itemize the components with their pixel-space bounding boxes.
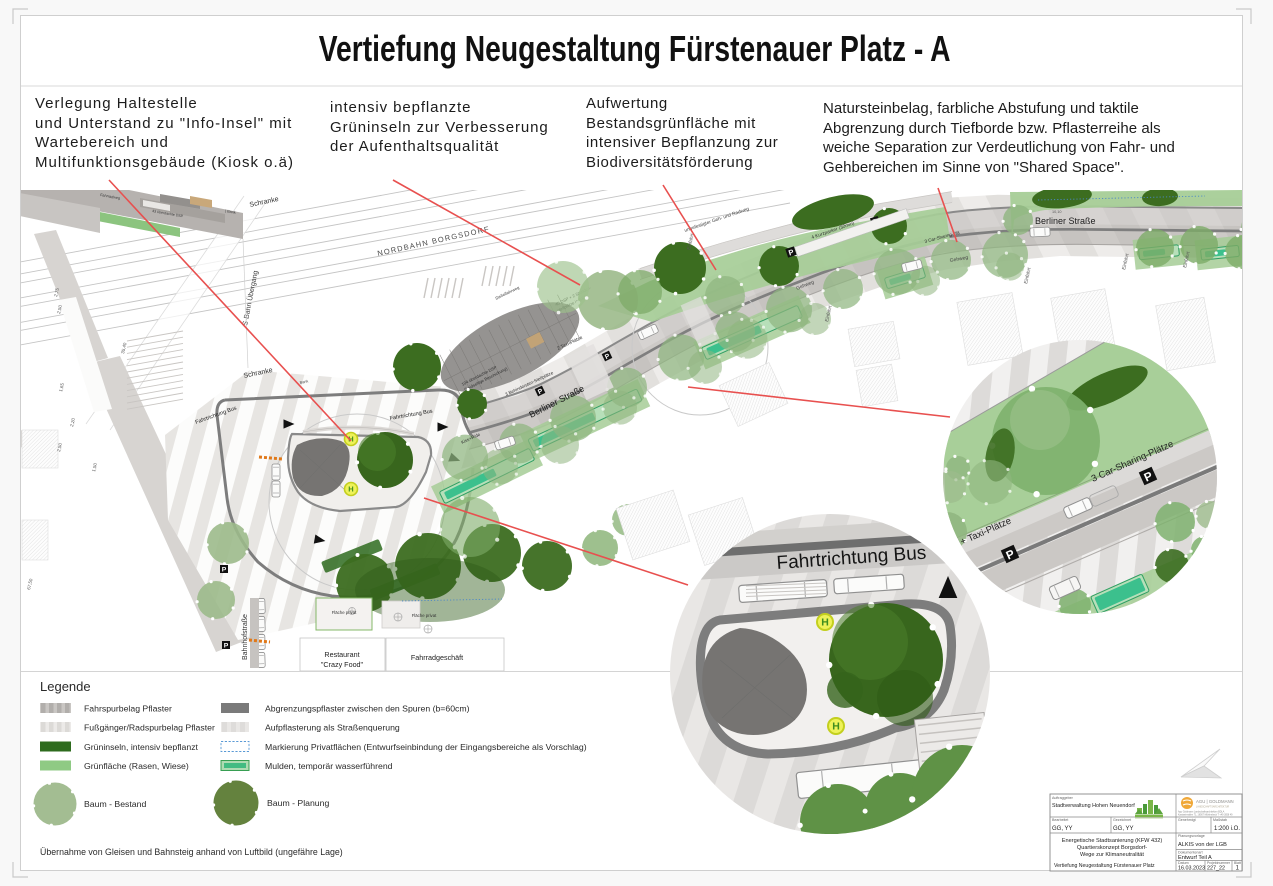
svg-text:S-Bahn Übergang: S-Bahn Übergang [241,270,260,327]
svg-text:1:200 i.O.: 1:200 i.O. [1214,826,1240,832]
svg-text:Fahrradgeschäft: Fahrradgeschäft [411,653,463,662]
svg-text:Bahnhofstraße: Bahnhofstraße [242,614,249,660]
svg-text:unbefestigter Geh- und Radweg: unbefestigter Geh- und Radweg [684,206,751,234]
svg-text:Baum - Bestand: Baum - Bestand [84,799,146,809]
svg-text:2,50: 2,50 [56,304,63,314]
svg-text:Legende: Legende [40,679,91,694]
svg-text:P: P [224,643,229,650]
svg-text:Projektnummer: Projektnummer [1207,861,1231,865]
svg-text:GG, YY: GG, YY [1113,826,1134,832]
svg-text:Wege zur Klimaneutralität: Wege zur Klimaneutralität [1080,852,1144,858]
svg-text:Planungsvorlage: Planungsvorlage [1178,834,1205,838]
svg-text:Schranke: Schranke [249,196,279,209]
svg-text:Fahrspurbelag Pflaster: Fahrspurbelag Pflaster [84,704,172,714]
svg-text:"Crazy Food": "Crazy Food" [321,660,364,669]
svg-text:Berliner Straße: Berliner Straße [1035,216,1096,226]
svg-text:H: H [348,485,353,494]
svg-text:2,50: 2,50 [56,442,63,452]
svg-text:Maßstab: Maßstab [1213,818,1227,822]
svg-text:Mulden, temporär wasserführend: Mulden, temporär wasserführend [265,761,393,771]
svg-text:AGU | GOLDMANN: AGU | GOLDMANN [1196,799,1234,804]
svg-text:ALKIS von der LGB: ALKIS von der LGB [1178,842,1227,848]
svg-text:Fläche privat: Fläche privat [332,610,357,615]
svg-text:Restaurant: Restaurant [324,650,359,659]
svg-text:Grüninseln, intensiv bepflanzt: Grüninseln, intensiv bepflanzt [84,742,199,752]
svg-text:Dokumentenart: Dokumentenart [1178,851,1203,855]
svg-text:Fußgänger/Radspurbelag Pflaste: Fußgänger/Radspurbelag Pflaster [84,723,215,733]
svg-text:Gezeichnet: Gezeichnet [1113,818,1131,822]
svg-text:1,50: 1,50 [91,462,98,472]
svg-text:Kastanienallee 71, 16567 Mühle: Kastanienallee 71, 16567 Mühlenbeck T +4… [1178,814,1233,817]
svg-text:Baum - Planung: Baum - Planung [267,798,329,808]
svg-text:Agu Goldmann Landschaftsarchit: Agu Goldmann Landschaftsarchitekten BDLA [1178,811,1225,814]
svg-text:Auftraggeber: Auftraggeber [1052,796,1074,800]
svg-text:GG, YY: GG, YY [1052,826,1073,832]
svg-text:35,40: 35,40 [120,342,128,355]
svg-text:227_22: 227_22 [1207,866,1225,872]
svg-text:H: H [832,721,840,733]
svg-text:Quartierskonzept Borgsdorf-: Quartierskonzept Borgsdorf- [1077,845,1147,851]
svg-text:Fläche privat: Fläche privat [412,613,437,618]
svg-text:Blatt: Blatt [1234,861,1241,865]
svg-text:10,10: 10,10 [1052,210,1062,214]
svg-text:P: P [222,567,227,574]
svg-text:LANDSCHAFTSARCHITEKTUR: LANDSCHAFTSARCHITEKTUR [1196,806,1230,809]
svg-text:H: H [821,617,829,629]
svg-text:Energetische Stadtsanierung (K: Energetische Stadtsanierung (KFW 432) [1062,838,1163,844]
svg-text:1,65: 1,65 [58,382,65,392]
svg-text:Abgrenzungspflaster zwischen d: Abgrenzungspflaster zwischen den Spuren … [265,704,470,714]
svg-text:Stadtverwaltung Hohen Neuendor: Stadtverwaltung Hohen Neuendorf [1052,803,1135,809]
svg-text:Grünfläche (Rasen, Wiese): Grünfläche (Rasen, Wiese) [84,761,189,771]
svg-text:Genehmigt: Genehmigt [1178,818,1196,822]
svg-text:Vertiefung Neugestaltung Fürst: Vertiefung Neugestaltung Fürstenauer Pla… [1054,863,1155,869]
svg-text:Einfahrt: Einfahrt [1023,266,1033,284]
svg-text:Bearbeitet: Bearbeitet [1052,818,1068,822]
svg-text:2,20: 2,20 [69,417,76,427]
svg-text:Stellelfahrweg: Stellelfahrweg [494,285,520,301]
svg-text:Übernahme von Gleisen und Bahn: Übernahme von Gleisen und Bahnsteig anha… [40,847,343,857]
svg-text:67,50: 67,50 [26,578,34,591]
svg-text:16.03.2023: 16.03.2023 [1178,866,1205,872]
svg-text:Datum: Datum [1178,861,1189,865]
svg-text:Aufpflasterung als Straßenquer: Aufpflasterung als Straßenquerung [265,723,400,733]
svg-text:Markierung Privatflächen (Entw: Markierung Privatflächen (Entwurfseinbin… [265,742,587,752]
